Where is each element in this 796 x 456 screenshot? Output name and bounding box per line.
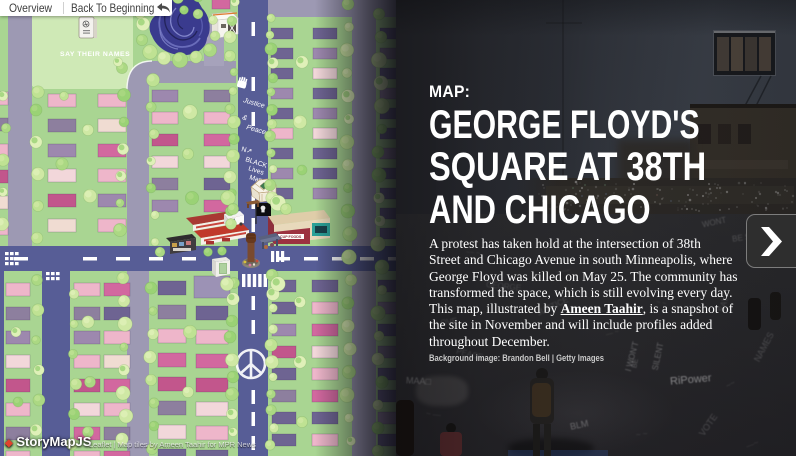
svg-text:CUP FOODS: CUP FOODS (280, 235, 302, 239)
svg-text:SAY THEIR NAMES: SAY THEIR NAMES (60, 51, 130, 58)
